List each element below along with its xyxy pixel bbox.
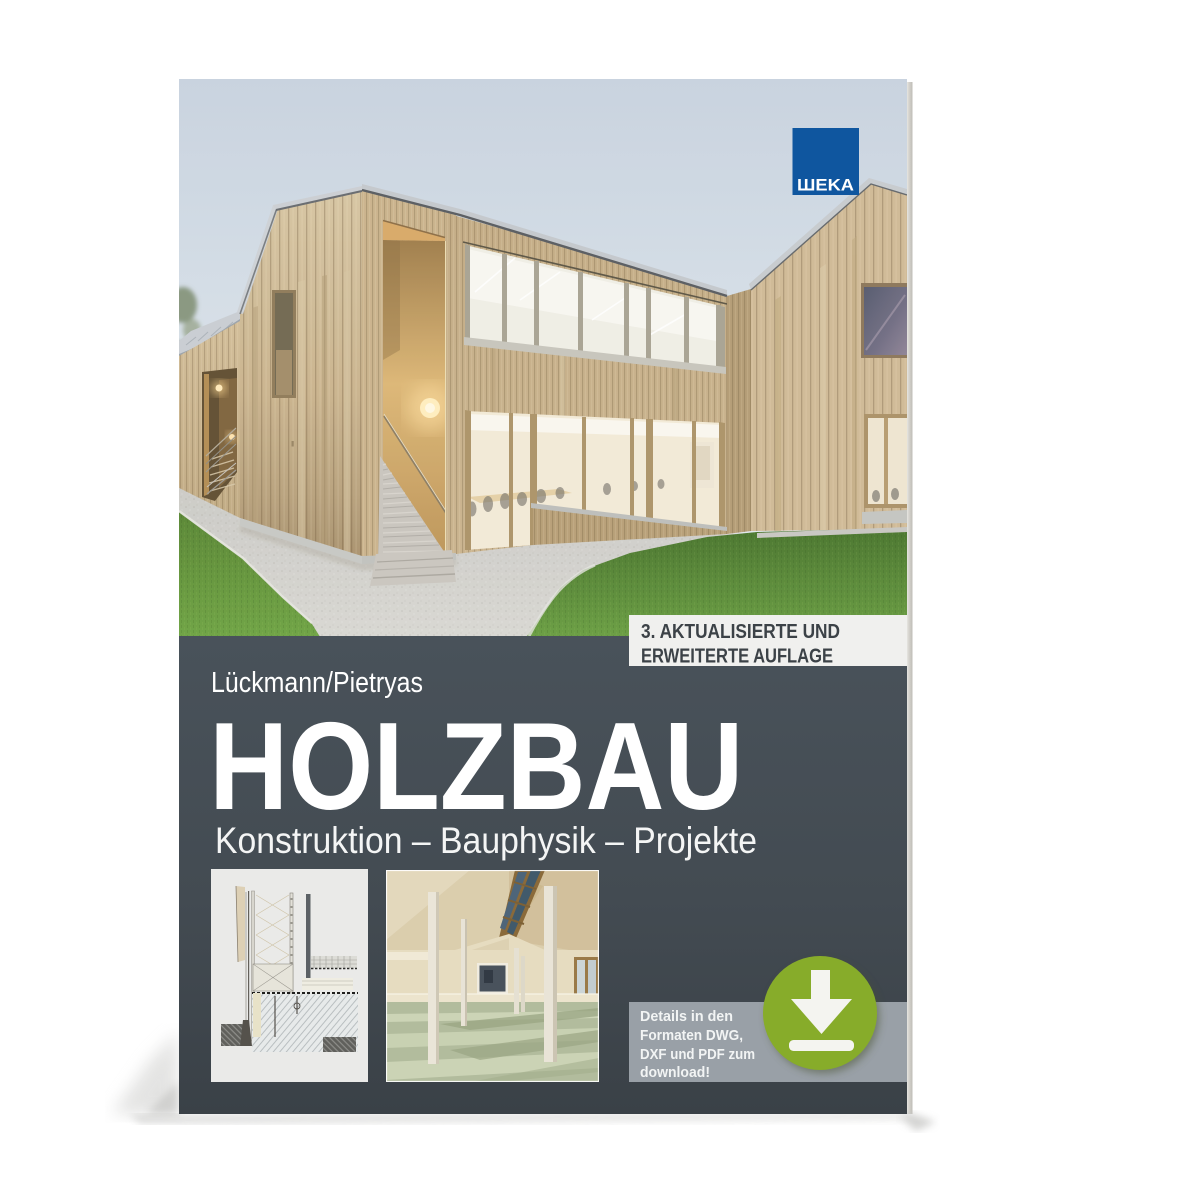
svg-text:Details in den: Details in den <box>640 1008 733 1025</box>
svg-text:ШEKA: ШEKA <box>797 176 854 195</box>
svg-text:Formaten DWG,: Formaten DWG, <box>640 1027 743 1044</box>
svg-text:Konstruktion – Bauphysik – Pro: Konstruktion – Bauphysik – Projekte <box>215 820 757 861</box>
svg-text:3. AKTUALISIERTE UND: 3. AKTUALISIERTE UND <box>641 620 840 643</box>
svg-text:DXF und PDF zum: DXF und PDF zum <box>640 1046 755 1063</box>
svg-text:HOLZBAU: HOLZBAU <box>209 698 743 836</box>
svg-text:ERWEITERTE AUFLAGE: ERWEITERTE AUFLAGE <box>641 645 833 668</box>
svg-text:download!: download! <box>640 1064 710 1081</box>
svg-text:Lückmann/Pietryas: Lückmann/Pietryas <box>211 667 423 699</box>
